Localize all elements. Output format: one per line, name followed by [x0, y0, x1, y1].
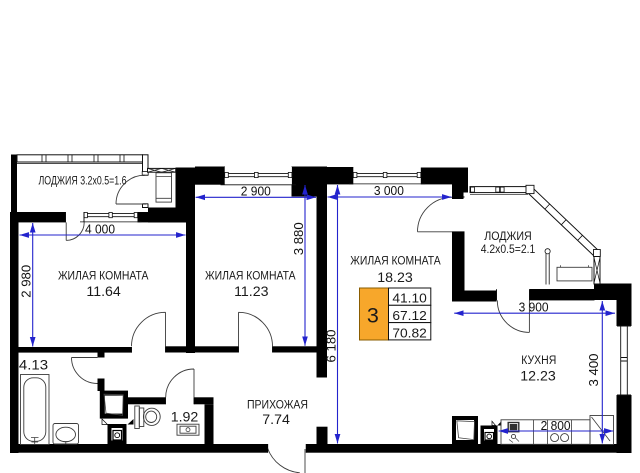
- svg-text:1.92: 1.92: [171, 410, 199, 426]
- svg-text:12.23: 12.23: [520, 368, 556, 384]
- svg-text:3 000: 3 000: [374, 184, 404, 198]
- svg-text:11.64: 11.64: [86, 284, 121, 300]
- svg-text:4.2х0.5=2.1: 4.2х0.5=2.1: [481, 244, 536, 256]
- svg-text:11.23: 11.23: [234, 284, 269, 300]
- svg-text:67.12: 67.12: [392, 308, 427, 323]
- svg-text:ЖИЛАЯ КОМНАТА: ЖИЛАЯ КОМНАТА: [205, 270, 296, 282]
- svg-text:2 800: 2 800: [541, 419, 571, 433]
- svg-text:ЖИЛАЯ КОМНАТА: ЖИЛАЯ КОМНАТА: [350, 255, 441, 267]
- svg-text:4 000: 4 000: [85, 222, 115, 236]
- svg-text:ПРИХОЖАЯ: ПРИХОЖАЯ: [247, 399, 308, 411]
- svg-text:7.74: 7.74: [262, 412, 290, 428]
- svg-text:2 900: 2 900: [241, 184, 271, 198]
- svg-text:3 900: 3 900: [519, 300, 549, 314]
- svg-text:ЛОДЖИЯ 3.2х0.5=1.6: ЛОДЖИЯ 3.2х0.5=1.6: [39, 175, 127, 187]
- svg-text:4.13: 4.13: [19, 357, 48, 373]
- svg-text:3 880: 3 880: [292, 222, 306, 255]
- svg-text:6 180: 6 180: [324, 329, 338, 362]
- svg-text:70.82: 70.82: [392, 325, 427, 340]
- svg-text:КУХНЯ: КУХНЯ: [521, 355, 556, 367]
- svg-text:ЖИЛАЯ КОМНАТА: ЖИЛАЯ КОМНАТА: [58, 270, 149, 282]
- svg-text:ЛОДЖИЯ: ЛОДЖИЯ: [484, 231, 532, 243]
- svg-text:41.10: 41.10: [392, 291, 427, 306]
- svg-text:3 400: 3 400: [587, 353, 601, 386]
- svg-text:18.23: 18.23: [377, 270, 413, 286]
- svg-text:3: 3: [367, 303, 379, 327]
- svg-text:2 980: 2 980: [19, 265, 33, 298]
